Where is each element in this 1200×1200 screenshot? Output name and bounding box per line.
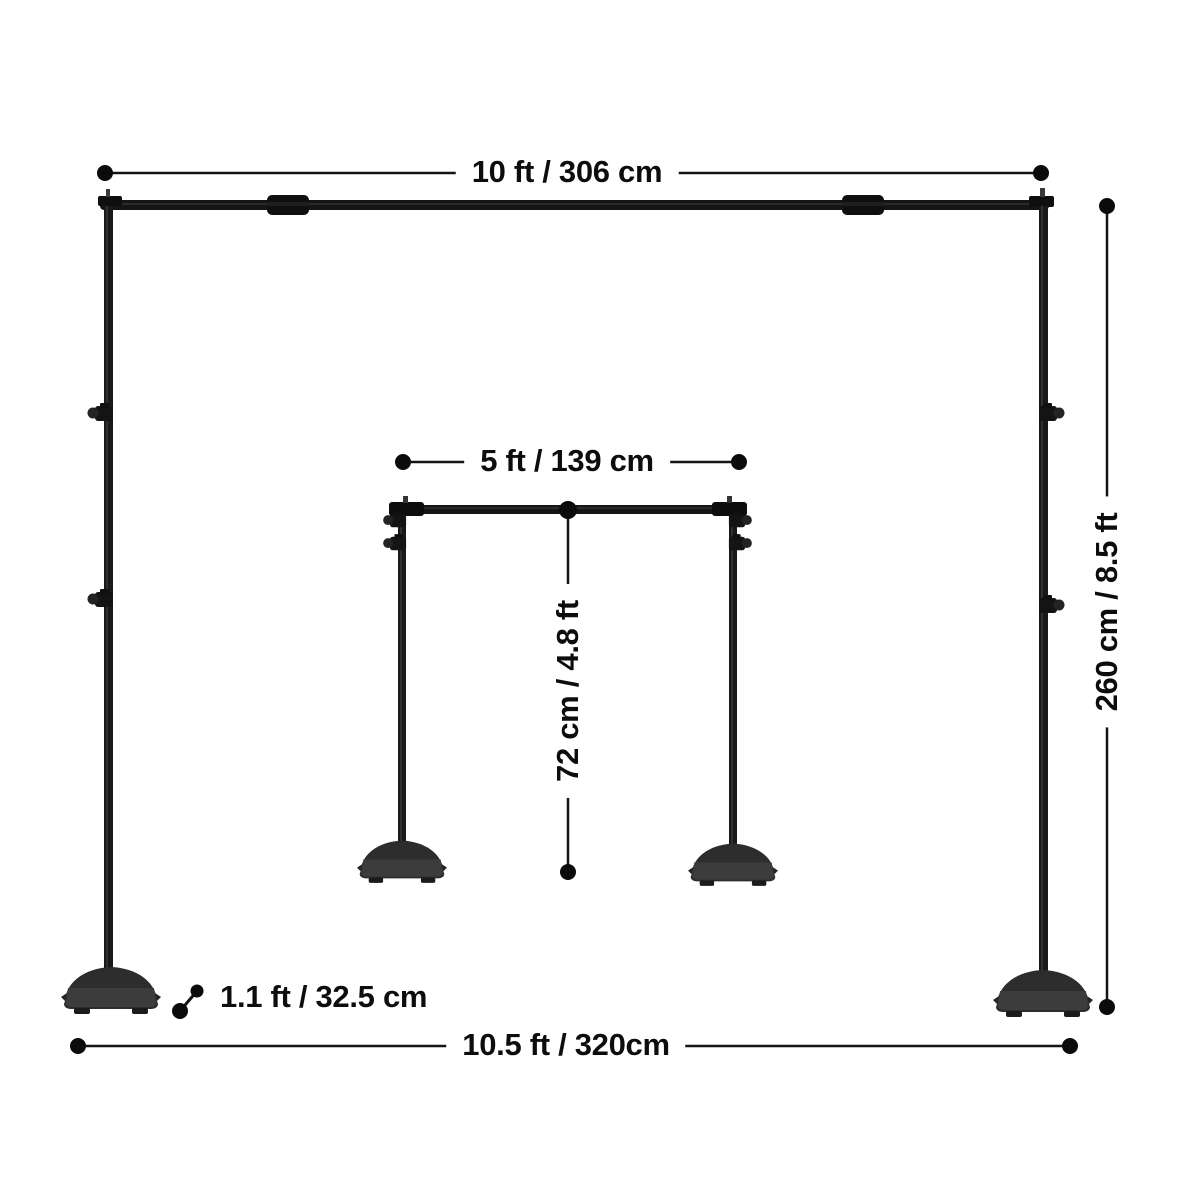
small-left-leg-highlight: [400, 514, 402, 852]
small-stand-left-base: [357, 841, 447, 883]
base-length-label: 1.1 ft / 32.5 cm: [214, 978, 433, 1016]
small-crossbar-pin-right: [727, 496, 732, 503]
inner-width-label: 5 ft / 139 cm: [464, 442, 670, 480]
large-stand-right-base: [993, 970, 1093, 1017]
dimension-endpoint-dot: [191, 985, 204, 998]
dimension-endpoint-dot: [70, 1038, 86, 1054]
top-width-label: 10 ft / 306 cm: [456, 153, 679, 191]
dimension-endpoint-dot: [97, 165, 113, 181]
dimension-endpoint-dot: [1099, 999, 1115, 1015]
stand-height-label: 260 cm / 8.5 ft: [1088, 497, 1126, 728]
large-stand-left-base: [61, 967, 161, 1014]
right-pole-highlight: [1041, 206, 1043, 983]
crossbar-highlight: [100, 203, 1049, 205]
corner-fitting-right: [1029, 196, 1054, 207]
inner-height-label: 72 cm / 4.8 ft: [549, 584, 587, 798]
dimension-endpoint-dot: [560, 864, 576, 880]
small-crossbar-pin-left: [403, 496, 408, 503]
large-stand-right-pole: [1039, 206, 1048, 983]
dimension-endpoint-dot: [731, 454, 747, 470]
corner-pin-right: [1040, 188, 1045, 197]
small-right-leg-highlight: [731, 514, 733, 854]
dimension-endpoint-dot: [559, 501, 577, 519]
dimension-endpoint-dot: [172, 1003, 188, 1019]
dimension-endpoint-dot: [395, 454, 411, 470]
small-stand-right-base: [688, 844, 778, 886]
footprint-width-label: 10.5 ft / 320cm: [446, 1026, 685, 1064]
dimension-endpoint-dot: [1062, 1038, 1078, 1054]
crossbar-coupler-right: [842, 195, 884, 215]
dimension-annotations: [70, 165, 1115, 1054]
corner-pin-left: [106, 189, 110, 197]
crossbar-coupler-left: [267, 195, 309, 215]
dimension-endpoint-dot: [1099, 198, 1115, 214]
dimension-endpoint-dot: [1033, 165, 1049, 181]
corner-fitting-left: [98, 196, 122, 206]
backdrop-stand-dimension-diagram: 10 ft / 306 cm 5 ft / 139 cm 72 cm / 4.8…: [0, 0, 1200, 1200]
base-length-marker: [172, 985, 204, 1020]
